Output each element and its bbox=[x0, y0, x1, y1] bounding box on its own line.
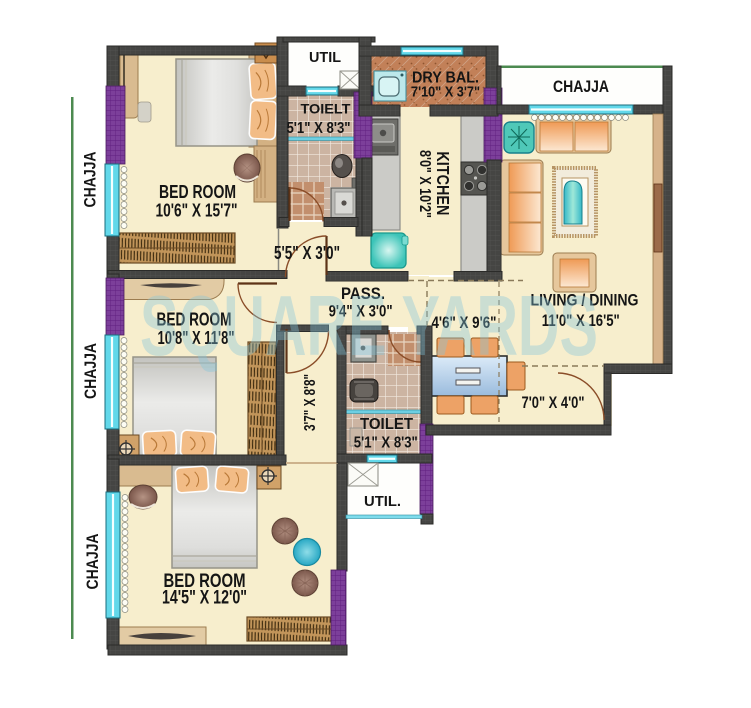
svg-text:KITCHEN: KITCHEN bbox=[433, 151, 453, 215]
svg-text:UTIL.: UTIL. bbox=[364, 493, 401, 510]
svg-text:CHAJJA: CHAJJA bbox=[83, 534, 102, 590]
svg-text:CHAJJA: CHAJJA bbox=[81, 343, 100, 399]
svg-text:10'6" X 15'7": 10'6" X 15'7" bbox=[156, 201, 238, 221]
svg-text:SQUARE YARDS: SQUARE YARDS bbox=[140, 279, 598, 374]
svg-text:7'10" X 3'7": 7'10" X 3'7" bbox=[411, 84, 480, 101]
svg-text:TOILET: TOILET bbox=[360, 416, 414, 433]
svg-text:5'1" X 8'3": 5'1" X 8'3" bbox=[287, 120, 351, 137]
svg-text:3'7" X 8'8": 3'7" X 8'8" bbox=[302, 374, 319, 431]
svg-text:CHAJJA: CHAJJA bbox=[553, 78, 609, 96]
svg-text:BED ROOM: BED ROOM bbox=[159, 182, 236, 202]
svg-text:5'1" X 8'3": 5'1" X 8'3" bbox=[354, 435, 418, 452]
svg-text:8'0" X 10'2": 8'0" X 10'2" bbox=[416, 150, 433, 218]
svg-text:CHAJJA: CHAJJA bbox=[81, 152, 100, 208]
svg-text:5'5" X 3'0": 5'5" X 3'0" bbox=[274, 243, 340, 263]
svg-text:TOIELT: TOIELT bbox=[301, 101, 351, 117]
svg-text:14'5" X 12'0": 14'5" X 12'0" bbox=[162, 588, 247, 609]
svg-text:7'0" X 4'0": 7'0" X 4'0" bbox=[522, 393, 585, 412]
svg-text:UTIL: UTIL bbox=[309, 49, 341, 66]
